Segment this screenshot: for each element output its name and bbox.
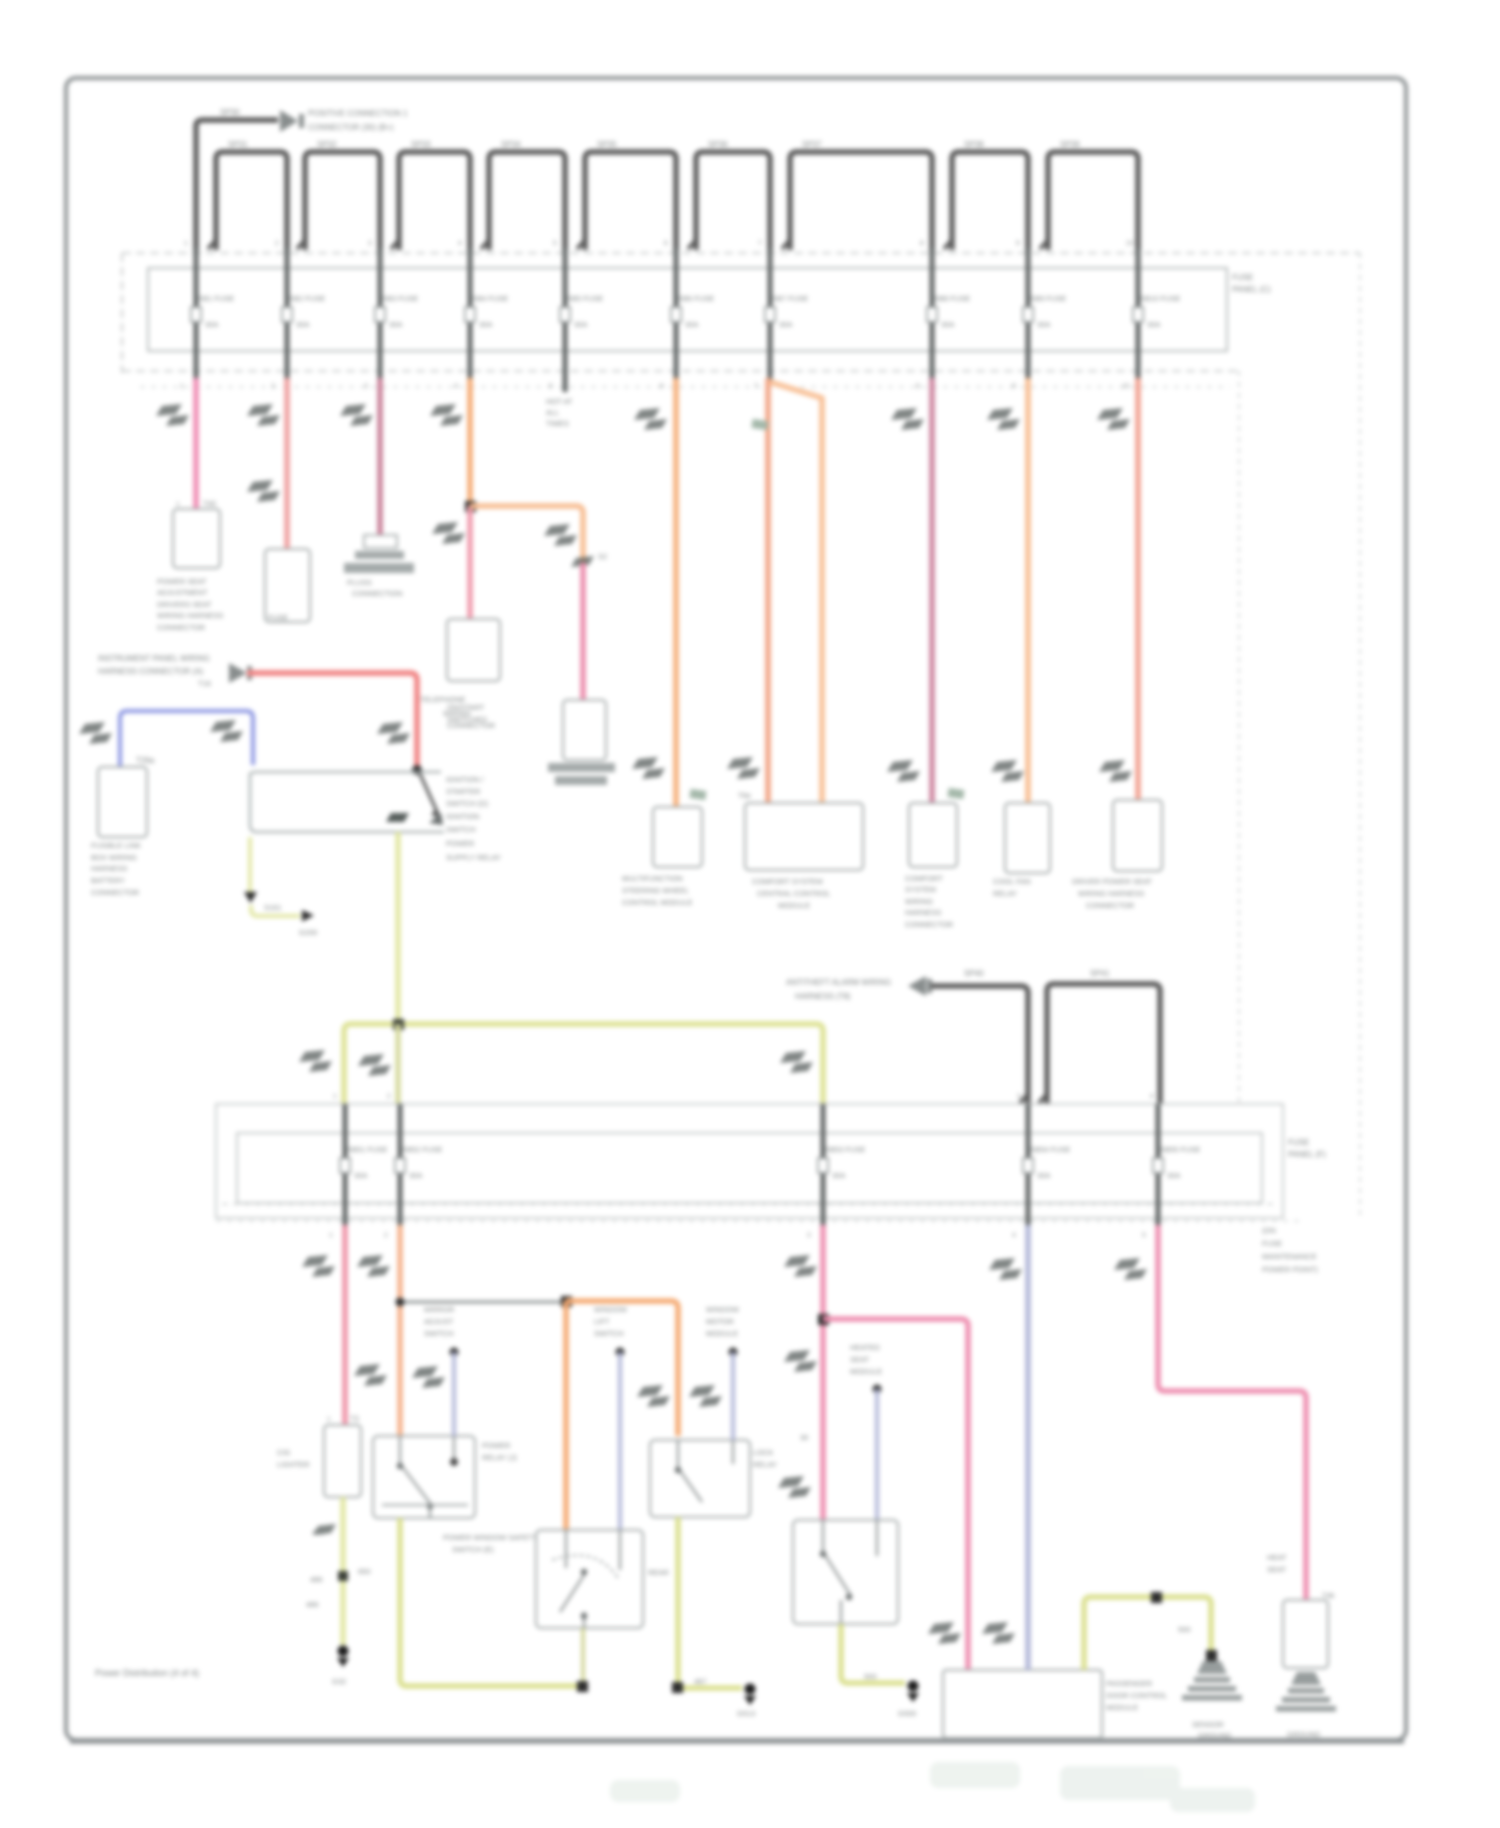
svg-text:LOCK: LOCK [753, 1448, 773, 1457]
svg-text:2: 2 [384, 1232, 388, 1239]
svg-text:WIRING HARNESS: WIRING HARNESS [157, 611, 223, 620]
svg-text:30A: 30A [1167, 1171, 1180, 1180]
svg-text:30A: 30A [574, 320, 587, 329]
svg-text:SUPPLY RELAY: SUPPLY RELAY [446, 853, 501, 862]
svg-text:PANEL (F): PANEL (F) [1288, 1150, 1326, 1159]
svg-text:5: 5 [549, 383, 553, 390]
svg-text:T4k: T4k [1322, 1591, 1335, 1600]
svg-text:ON/START: ON/START [447, 703, 485, 712]
svg-text:SB53 FUSE: SB53 FUSE [825, 1145, 865, 1154]
svg-text:4: 4 [1150, 1093, 1154, 1100]
svg-text:WIRING: WIRING [905, 897, 933, 906]
svg-text:SB8 FUSE: SB8 FUSE [934, 294, 970, 303]
svg-text:PANEL (C): PANEL (C) [1232, 285, 1271, 294]
svg-text:3: 3 [1017, 1093, 1021, 1100]
svg-text:650: 650 [358, 1567, 371, 1576]
svg-text:T3: T3 [350, 1414, 359, 1423]
svg-text:7: 7 [758, 240, 762, 247]
svg-text:SP39: SP39 [1060, 140, 1080, 149]
svg-text:WIRING HARNESS: WIRING HARNESS [1078, 889, 1144, 898]
svg-text:SB10 FUSE: SB10 FUSE [1140, 294, 1180, 303]
svg-text:POWER: POWER [446, 839, 475, 848]
svg-text:SP32: SP32 [317, 140, 337, 149]
svg-text:SB3 FUSE: SB3 FUSE [382, 294, 418, 303]
svg-text:STEERING WHEEL: STEERING WHEEL [622, 886, 689, 895]
svg-text:MIRROR: MIRROR [424, 1305, 455, 1314]
svg-text:500: 500 [1178, 1625, 1191, 1634]
svg-text:TIMES: TIMES [546, 419, 569, 428]
svg-text:POWER POINT): POWER POINT) [1262, 1265, 1318, 1274]
svg-text:SWITCH (D): SWITCH (D) [446, 799, 489, 808]
svg-text:CONNECTOR (30) (B+): CONNECTOR (30) (B+) [308, 123, 394, 132]
svg-text:SYSTEM: SYSTEM [905, 885, 936, 894]
svg-text:SWITCHED: SWITCHED [447, 715, 488, 724]
svg-text:4: 4 [458, 240, 462, 247]
svg-text:WINDOW: WINDOW [594, 1305, 628, 1314]
svg-text:10: 10 [1126, 240, 1134, 247]
svg-text:GROUND: GROUND [1198, 1731, 1232, 1740]
svg-text:9: 9 [1012, 383, 1016, 390]
svg-text:CONNECTOR: CONNECTOR [91, 888, 140, 897]
svg-text:SP36: SP36 [708, 140, 728, 149]
svg-text:IGNITION /: IGNITION / [446, 775, 484, 784]
svg-text:CONNECTOR: CONNECTOR [1086, 901, 1135, 910]
svg-text:PLUSS: PLUSS [347, 578, 372, 587]
svg-text:LIGHTER: LIGHTER [277, 1460, 310, 1469]
svg-text:SB55 FUSE: SB55 FUSE [1160, 1145, 1200, 1154]
svg-text:INSTRUMENT PANEL WIRING: INSTRUMENT PANEL WIRING [98, 654, 210, 663]
svg-text:FUSE: FUSE [1232, 273, 1253, 282]
svg-text:S2: S2 [598, 552, 607, 561]
svg-text:30A: 30A [1037, 320, 1050, 329]
svg-text:SP30: SP30 [220, 108, 240, 117]
svg-text:6: 6 [660, 383, 664, 390]
svg-text:FUSE: FUSE [1288, 1138, 1309, 1147]
svg-text:STARTER: STARTER [446, 787, 481, 796]
svg-text:SP38: SP38 [964, 140, 984, 149]
svg-text:2: 2 [275, 240, 279, 247]
svg-text:500: 500 [864, 1672, 877, 1681]
svg-text:9: 9 [1016, 240, 1020, 247]
svg-text:CONNECTOR: CONNECTOR [157, 623, 206, 632]
svg-text:MODULE: MODULE [850, 1367, 882, 1376]
svg-text:FUSE: FUSE [268, 613, 288, 622]
svg-text:ADJUSTMENT: ADJUSTMENT [157, 588, 208, 597]
svg-text:BATTERY: BATTERY [91, 876, 125, 885]
svg-text:SP35: SP35 [597, 140, 617, 149]
svg-text:SB2 FUSE: SB2 FUSE [289, 294, 325, 303]
svg-text:SP37: SP37 [802, 140, 822, 149]
svg-text:1: 1 [180, 383, 184, 390]
svg-text:CONNECTION: CONNECTION [352, 589, 402, 598]
svg-text:COOL FAN: COOL FAN [993, 877, 1031, 886]
svg-text:HARNESS CONNECTOR (A): HARNESS CONNECTOR (A) [98, 667, 204, 676]
svg-text:MULTIFUNCTION: MULTIFUNCTION [622, 874, 683, 883]
svg-text:RELAY: RELAY [753, 1460, 777, 1469]
svg-text:DRIVERS SEAT: DRIVERS SEAT [157, 600, 212, 609]
svg-text:7: 7 [754, 383, 758, 390]
svg-text:HARNESS: HARNESS [91, 864, 127, 873]
svg-text:HEATED: HEATED [850, 1343, 880, 1352]
svg-text:30A: 30A [205, 320, 218, 329]
svg-text:WINDOW: WINDOW [706, 1305, 740, 1314]
svg-text:S161: S161 [264, 903, 282, 912]
svg-text:G200: G200 [299, 928, 317, 937]
svg-text:30A: 30A [296, 320, 309, 329]
svg-text:SEAT: SEAT [850, 1355, 869, 1364]
svg-text:CENTRAL CONTROL: CENTRAL CONTROL [757, 889, 830, 898]
svg-text:2: 2 [387, 1093, 391, 1100]
svg-text:G32: G32 [332, 1677, 346, 1686]
svg-text:HARNESS: HARNESS [905, 908, 941, 917]
svg-text:30A: 30A [389, 320, 402, 329]
svg-text:HARNESS (T8): HARNESS (T8) [795, 992, 851, 1001]
svg-text:DRIVER POWER SEAT: DRIVER POWER SEAT [1072, 877, 1152, 886]
svg-text:SWITCH: SWITCH [424, 1329, 454, 1338]
svg-text:MOTOR: MOTOR [706, 1317, 734, 1326]
svg-text:30A: 30A [354, 1171, 367, 1180]
svg-text:30A: 30A [409, 1171, 422, 1180]
svg-text:5: 5 [1142, 1232, 1146, 1239]
svg-text:SP33: SP33 [411, 140, 431, 149]
svg-text:4: 4 [1012, 1232, 1016, 1239]
svg-text:SWITCH: SWITCH [594, 1329, 624, 1338]
svg-text:G513: G513 [737, 1709, 755, 1718]
svg-text:T40: T40 [203, 499, 216, 508]
svg-text:POWER WINDOW SAFETY: POWER WINDOW SAFETY [443, 1533, 538, 1542]
svg-text:RELAY: RELAY [993, 889, 1017, 898]
svg-text:1: 1 [327, 1416, 331, 1423]
svg-text:G500: G500 [898, 1709, 916, 1718]
svg-text:30A: 30A [479, 320, 492, 329]
svg-text:6: 6 [664, 240, 668, 247]
svg-text:COMFORT: COMFORT [905, 874, 943, 883]
svg-text:SB7 FUSE: SB7 FUSE [772, 294, 808, 303]
svg-text:486: 486 [310, 1575, 323, 1584]
svg-text:IGNITION: IGNITION [446, 812, 479, 821]
svg-text:(ON: (ON [1262, 1226, 1276, 1235]
svg-text:1: 1 [333, 1093, 337, 1100]
svg-text:GROUND: GROUND [1287, 1730, 1321, 1739]
svg-text:POSITIVE CONNECTION 1: POSITIVE CONNECTION 1 [308, 109, 408, 118]
svg-text:ALL: ALL [546, 408, 559, 417]
svg-text:BOX WIRING: BOX WIRING [91, 853, 137, 862]
svg-text:3: 3 [364, 383, 368, 390]
svg-text:T16: T16 [198, 679, 211, 688]
svg-text:30A: 30A [1037, 1171, 1050, 1180]
svg-text:SB9 FUSE: SB9 FUSE [1030, 294, 1066, 303]
svg-text:30A: 30A [832, 1171, 845, 1180]
svg-text:HEAT: HEAT [1267, 1553, 1287, 1562]
svg-text:SP41: SP41 [1090, 969, 1110, 978]
svg-text:3: 3 [807, 1232, 811, 1239]
svg-text:30A: 30A [941, 320, 954, 329]
svg-text:SP31: SP31 [228, 140, 248, 149]
svg-text:SB5 FUSE: SB5 FUSE [567, 294, 603, 303]
svg-text:CONTROL MODULE: CONTROL MODULE [622, 898, 693, 907]
svg-text:1: 1 [184, 240, 188, 247]
svg-text:10: 10 [1122, 383, 1130, 390]
svg-text:MODULE: MODULE [1106, 1703, 1138, 1712]
svg-text:8: 8 [916, 383, 920, 390]
svg-text:30A: 30A [1147, 320, 1160, 329]
svg-text:487: 487 [694, 1677, 707, 1686]
svg-text:ADJUST: ADJUST [424, 1317, 454, 1326]
svg-text:HOT AT: HOT AT [546, 397, 573, 406]
svg-text:5: 5 [553, 240, 557, 247]
svg-text:486: 486 [312, 1528, 325, 1537]
svg-text:T26a: T26a [136, 756, 155, 765]
svg-text:POWER SEAT: POWER SEAT [157, 577, 207, 586]
svg-text:SB1 FUSE: SB1 FUSE [198, 294, 234, 303]
svg-text:SB52 FUSE: SB52 FUSE [402, 1145, 442, 1154]
svg-text:MAINTENANCE: MAINTENANCE [1262, 1252, 1317, 1261]
svg-text:2: 2 [271, 383, 275, 390]
svg-text:MODULE: MODULE [706, 1329, 738, 1338]
svg-text:T6e: T6e [738, 791, 751, 800]
svg-text:30A: 30A [685, 320, 698, 329]
svg-text:RELAY (J): RELAY (J) [482, 1453, 517, 1462]
svg-text:SB4 FUSE: SB4 FUSE [472, 294, 508, 303]
svg-text:CIG: CIG [277, 1448, 291, 1457]
svg-text:30: 30 [800, 1433, 808, 1442]
svg-text:SENSOR: SENSOR [1192, 1720, 1224, 1729]
svg-text:SB54 FUSE: SB54 FUSE [1030, 1145, 1070, 1154]
svg-text:MODULE: MODULE [778, 901, 810, 910]
svg-text:LIFT: LIFT [594, 1317, 610, 1326]
svg-text:4: 4 [454, 383, 458, 390]
svg-text:SP34: SP34 [501, 140, 521, 149]
svg-text:3: 3 [368, 240, 372, 247]
svg-text:1: 1 [176, 501, 180, 508]
svg-text:CONNECTOR: CONNECTOR [905, 920, 954, 929]
svg-text:PASSENGER: PASSENGER [1106, 1679, 1153, 1688]
svg-text:8: 8 [920, 240, 924, 247]
svg-text:ANTITHEFT ALARM WIRING: ANTITHEFT ALARM WIRING [786, 978, 891, 987]
svg-text:30A: 30A [779, 320, 792, 329]
svg-text:SP40: SP40 [964, 969, 984, 978]
svg-text:POWER: POWER [482, 1441, 511, 1450]
svg-text:1: 1 [329, 1232, 333, 1239]
svg-text:SEAT: SEAT [1267, 1565, 1286, 1574]
svg-text:FUSIBLE LINK: FUSIBLE LINK [91, 841, 141, 850]
svg-text:SB51 FUSE: SB51 FUSE [347, 1145, 387, 1154]
svg-text:SWITCH: SWITCH [446, 825, 476, 834]
svg-text:Power Distribution (4 of 4): Power Distribution (4 of 4) [95, 1668, 199, 1678]
svg-text:SWITCH (E): SWITCH (E) [452, 1545, 494, 1554]
svg-text:COMFORT SYSTEM: COMFORT SYSTEM [752, 877, 823, 886]
svg-text:REAR: REAR [648, 1568, 669, 1577]
svg-text:FUSE: FUSE [1262, 1239, 1282, 1248]
svg-text:SB6 FUSE: SB6 FUSE [678, 294, 714, 303]
svg-text:DOOR CONTROL: DOOR CONTROL [1106, 1691, 1167, 1700]
svg-text:486: 486 [306, 1600, 319, 1609]
